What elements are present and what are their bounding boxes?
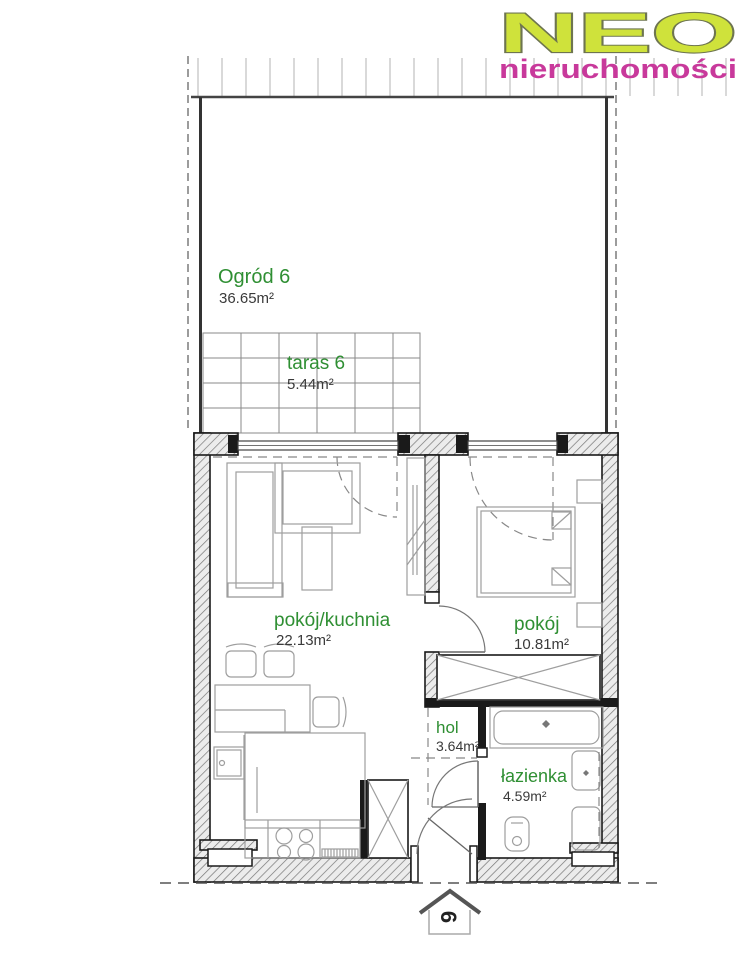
hall-label: hol	[436, 718, 459, 737]
nightstand-bottom-icon	[577, 603, 602, 627]
balcony-door-swing-living	[213, 457, 397, 517]
toilet-icon	[505, 817, 529, 851]
bed-icon	[477, 507, 575, 597]
window-post-1	[228, 435, 238, 453]
unit-marker: 6	[420, 891, 480, 934]
room-labels: Ogród 6 36.65m² taras 6 5.44m² pokój/kuc…	[218, 266, 569, 804]
bathroom-area-label: 4.59m²	[503, 788, 547, 804]
company-logo: NEO nieruchomości	[493, 2, 743, 86]
window-post-4	[557, 435, 568, 453]
nightstand-top-icon	[577, 480, 602, 503]
niche-box-right	[572, 852, 614, 866]
bathroom-label: łazienka	[501, 766, 568, 786]
unit-number: 6	[436, 911, 461, 923]
bedroom-label: pokój	[514, 614, 559, 635]
window-post-3	[456, 435, 468, 453]
floorplan-page: 6 Ogród 6 36.65m² taras 6 5.44m² pokój/k…	[0, 0, 745, 960]
wall-shaft-side	[360, 780, 368, 858]
terrace-area-label: 5.44m²	[287, 376, 334, 393]
garden-label: Ogród 6	[218, 266, 290, 288]
entrance-post-right	[470, 846, 477, 882]
window-post-2	[398, 435, 410, 453]
hall-area-label: 3.64m²	[436, 738, 480, 754]
coffee-table-icon	[302, 527, 332, 590]
balcony-window-living	[238, 441, 398, 450]
bedroom-door-icon	[439, 606, 485, 652]
wall-right	[602, 433, 618, 882]
washbasin-icon	[572, 751, 600, 790]
floorplan-drawing: 6 Ogród 6 36.65m² taras 6 5.44m² pokój/k…	[0, 0, 745, 960]
bedroom-area-label: 10.81m²	[514, 636, 569, 653]
balcony-window-bedroom	[468, 441, 557, 450]
dining-table-icon	[215, 685, 310, 732]
garden-area-label: 36.65m²	[219, 290, 274, 307]
stove-icon	[276, 828, 314, 860]
living-kitchen-area-label: 22.13m²	[276, 632, 331, 649]
kitchen-sink-icon	[214, 747, 244, 779]
living-kitchen-furniture	[214, 458, 425, 860]
windows	[238, 441, 557, 450]
terrace-label: taras 6	[287, 353, 345, 374]
tv-cabinet-icon	[407, 458, 425, 595]
dishwasher-icon	[322, 849, 358, 857]
bedroom-door-post	[425, 592, 439, 603]
wall-left	[194, 433, 210, 882]
wardrobe-icon	[437, 655, 600, 700]
wall-bathroom-lower	[478, 803, 486, 860]
unit-arrow-roof-icon	[420, 891, 480, 913]
wall-middle-upper	[425, 455, 439, 592]
bathroom-door-icon	[432, 761, 478, 807]
kitchen-counter-icon	[244, 733, 365, 858]
bedroom-furniture	[437, 480, 602, 700]
garden-area	[188, 56, 726, 433]
sofa-icon	[227, 463, 360, 597]
living-kitchen-label: pokój/kuchnia	[274, 610, 391, 631]
shaft-icon	[368, 780, 408, 858]
bathtub-icon	[490, 707, 603, 748]
logo-tagline-text: nieruchomości	[499, 54, 737, 84]
